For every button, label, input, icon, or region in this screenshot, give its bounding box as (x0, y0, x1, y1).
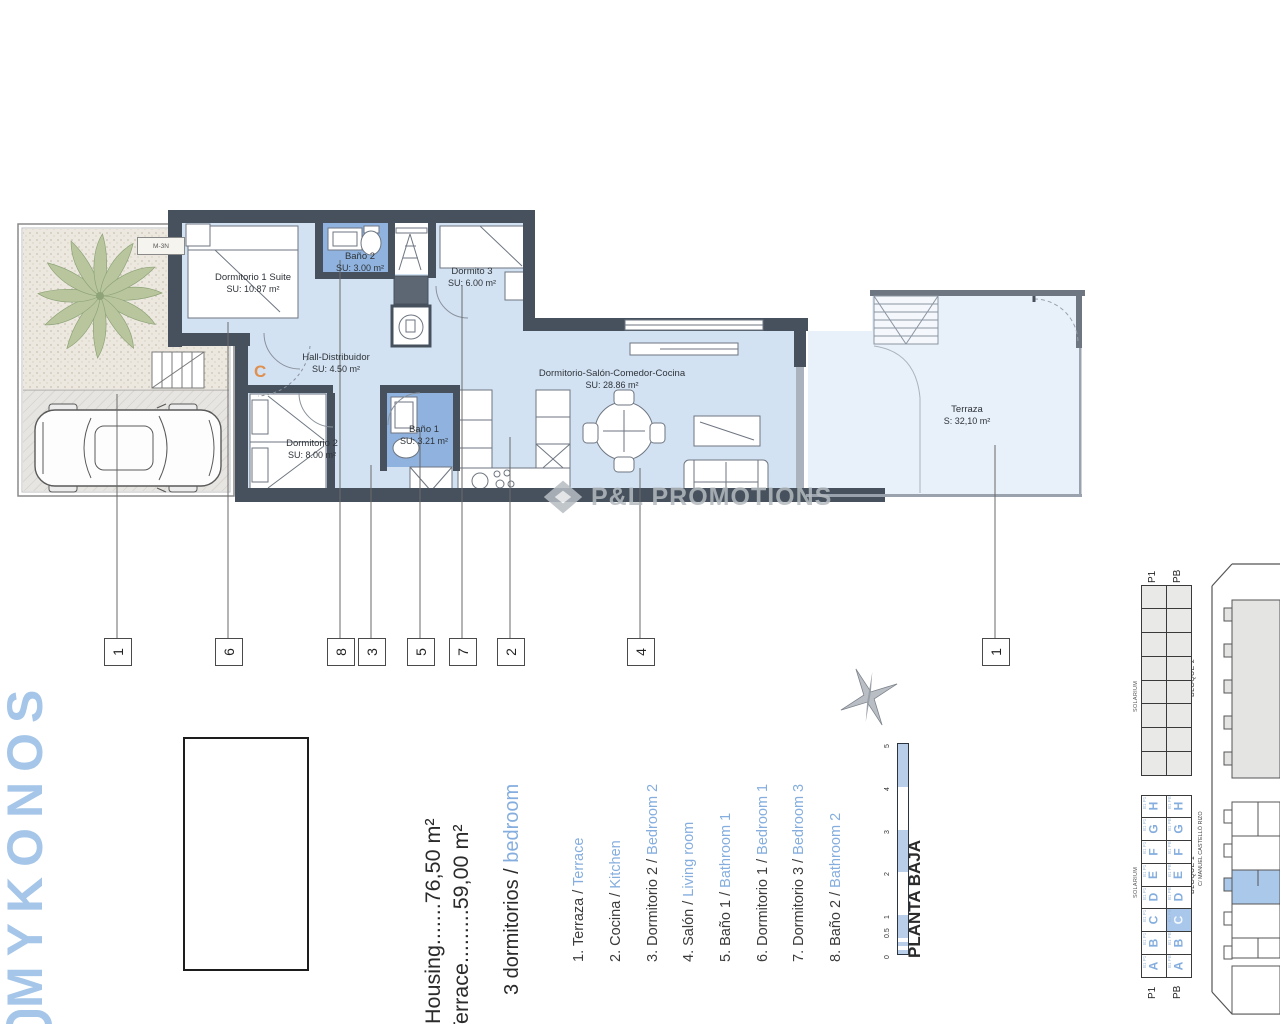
unit-cell-p1-g: B1 P1G (1141, 817, 1167, 841)
callout-3: 3 (358, 638, 386, 666)
terrace-floor (808, 296, 1080, 494)
site-plan (1200, 556, 1280, 1024)
unit-cell-pb-h: B1 PBH (1166, 795, 1192, 819)
unit-cell-pb-e: B1 PBE (1166, 863, 1192, 887)
outdoor-stairs (152, 352, 204, 388)
room-label-salon: Dormitorio-Salón-Comedor-CocinaSU: 28.86… (522, 368, 702, 392)
site-highlighted-unit (1232, 870, 1280, 904)
door-letter-c: C (254, 362, 266, 382)
plot-chip: M-3N (137, 237, 185, 255)
unit-cell-p1-e: B1 P1E (1141, 863, 1167, 887)
room-label-bano1: Baño 1SU: 3.21 m² (334, 424, 514, 448)
scale-bar (897, 743, 909, 955)
unit-cell-pb-f: B1 PBF (1166, 840, 1192, 864)
unit-cell-pb-b: B1 PBB (1166, 931, 1192, 955)
pl-promotions-logo-icon (542, 478, 584, 516)
callout-1-left: 1 (104, 638, 132, 666)
callout-2: 2 (497, 638, 525, 666)
unit-cell-p1-f: B1 P1F (1141, 840, 1167, 864)
room-label-terrace: TerrazaS: 32,10 m² (877, 404, 1057, 428)
site-building-bloque1 (1224, 802, 1280, 1014)
unit-cell-p1-b: B1 P1B (1141, 931, 1167, 955)
unit-cell-p1-c: B1 P1C (1141, 908, 1167, 932)
unit-cell-pb-g: B1 PBG (1166, 817, 1192, 841)
unit-cell-pb-a: B1 PBA (1166, 954, 1192, 978)
watermark-text: P&L PROMOTIONS (591, 483, 832, 512)
bloque2-unit-grid (1141, 585, 1191, 775)
bloque1-unit-grid: B1 P1H B1 PBH B1 P1G B1 PBG B1 P1F B1 PB… (1141, 795, 1191, 977)
callout-8: 8 (327, 638, 355, 666)
unit-cell-p1-a: B1 P1A (1141, 954, 1167, 978)
callout-4: 4 (627, 638, 655, 666)
north-compass-icon (838, 666, 900, 728)
room-label-hall: Hall-DistribuidorSU: 4.50 m² (246, 352, 426, 376)
callout-7: 7 (449, 638, 477, 666)
callout-1-right: 1 (982, 638, 1010, 666)
car-icon (35, 404, 221, 492)
unit-cell-pb-c-highlighted: B1 PBC (1166, 908, 1192, 932)
room-label-dorm3: Dormito 3SU: 6.00 m² (382, 266, 562, 290)
mykonos-logo-cropped-glyph (6, 1010, 52, 1024)
site-building-bloque2 (1224, 600, 1280, 778)
callout-5: 5 (407, 638, 435, 666)
room-label-dorm1: Dormitorio 1 SuiteSU: 10.87 m² (163, 272, 343, 296)
unit-cell-p1-d: B1 P1D (1141, 886, 1167, 910)
unit-cell-p1-h: B1 P1H (1141, 795, 1167, 819)
floor-plan-sheet: Dormitorio 1 SuiteSU: 10.87 m² Baño 2SU:… (0, 0, 1280, 1024)
callout-6: 6 (215, 638, 243, 666)
title-block (183, 737, 309, 971)
unit-cell-pb-d: B1 PBD (1166, 886, 1192, 910)
watermark: P&L PROMOTIONS (542, 478, 832, 516)
